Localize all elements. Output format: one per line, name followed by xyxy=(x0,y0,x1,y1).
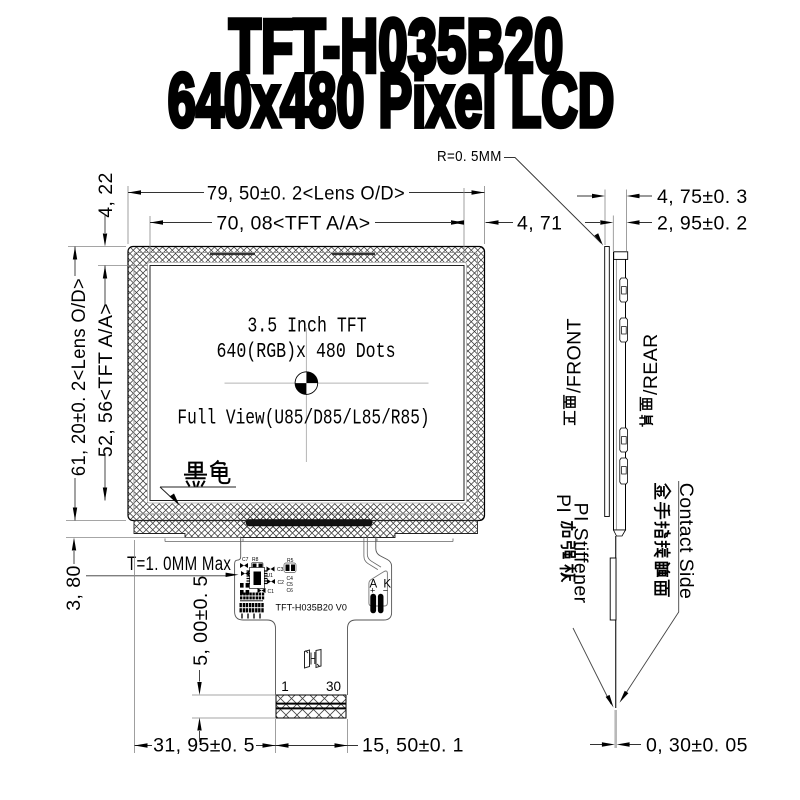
svg-text:640x480 Pixel LCD: 640x480 Pixel LCD xyxy=(168,58,615,143)
svg-text:R8: R8 xyxy=(252,557,259,563)
svg-text:70, 08<TFT A/A>: 70, 08<TFT A/A> xyxy=(216,213,370,235)
svg-text:R5: R5 xyxy=(287,558,294,564)
svg-text:C1: C1 xyxy=(268,589,275,595)
svg-text:C2: C2 xyxy=(278,580,285,586)
svg-text:C3: C3 xyxy=(277,567,284,573)
svg-text:/REAR: /REAR xyxy=(640,333,662,395)
svg-text:0, 30±0. 05: 0, 30±0. 05 xyxy=(646,735,748,757)
svg-text:4, 71: 4, 71 xyxy=(517,213,562,235)
svg-text:2, 95±0. 2: 2, 95±0. 2 xyxy=(657,213,748,235)
svg-text:3, 80: 3, 80 xyxy=(63,565,85,610)
svg-text:C6: C6 xyxy=(287,588,294,594)
svg-text:T=1. 0MM Max: T=1. 0MM Max xyxy=(127,552,231,574)
svg-text:79, 50±0. 2<Lens O/D>: 79, 50±0. 2<Lens O/D> xyxy=(207,183,405,205)
svg-text:31, 95±0. 5: 31, 95±0. 5 xyxy=(153,735,255,757)
svg-text:C7: C7 xyxy=(242,557,249,563)
svg-text:1: 1 xyxy=(281,679,289,694)
svg-text:5, 00±0. 5: 5, 00±0. 5 xyxy=(190,575,212,666)
svg-text:U1: U1 xyxy=(267,573,274,579)
svg-text:4, 22: 4, 22 xyxy=(95,172,117,217)
svg-text:Contact Side: Contact Side xyxy=(675,483,697,599)
svg-text:640(RGB)x 480 Dots: 640(RGB)x 480 Dots xyxy=(216,339,395,363)
svg-text:61, 20±0. 2<Lens O/D>: 61, 20±0. 2<Lens O/D> xyxy=(69,278,91,476)
svg-text:3.5 Inch TFT: 3.5 Inch TFT xyxy=(247,314,366,338)
svg-text:PI Stiffener: PI Stiffener xyxy=(570,503,592,604)
svg-text:30: 30 xyxy=(326,679,341,694)
svg-text:/FRONT: /FRONT xyxy=(564,318,586,393)
svg-text:R=0. 5MM: R=0. 5MM xyxy=(437,148,502,165)
svg-text:Full View(U85/D85/L85/R85): Full View(U85/D85/L85/R85) xyxy=(177,406,429,431)
svg-text:4, 75±0. 3: 4, 75±0. 3 xyxy=(657,186,748,208)
svg-text:PI: PI xyxy=(552,494,574,513)
svg-text:15, 50±0. 1: 15, 50±0. 1 xyxy=(362,735,464,757)
svg-text:52, 56<TFT A/A>: 52, 56<TFT A/A> xyxy=(95,303,117,457)
svg-text:TFT-H035B20 V0: TFT-H035B20 V0 xyxy=(276,603,347,613)
